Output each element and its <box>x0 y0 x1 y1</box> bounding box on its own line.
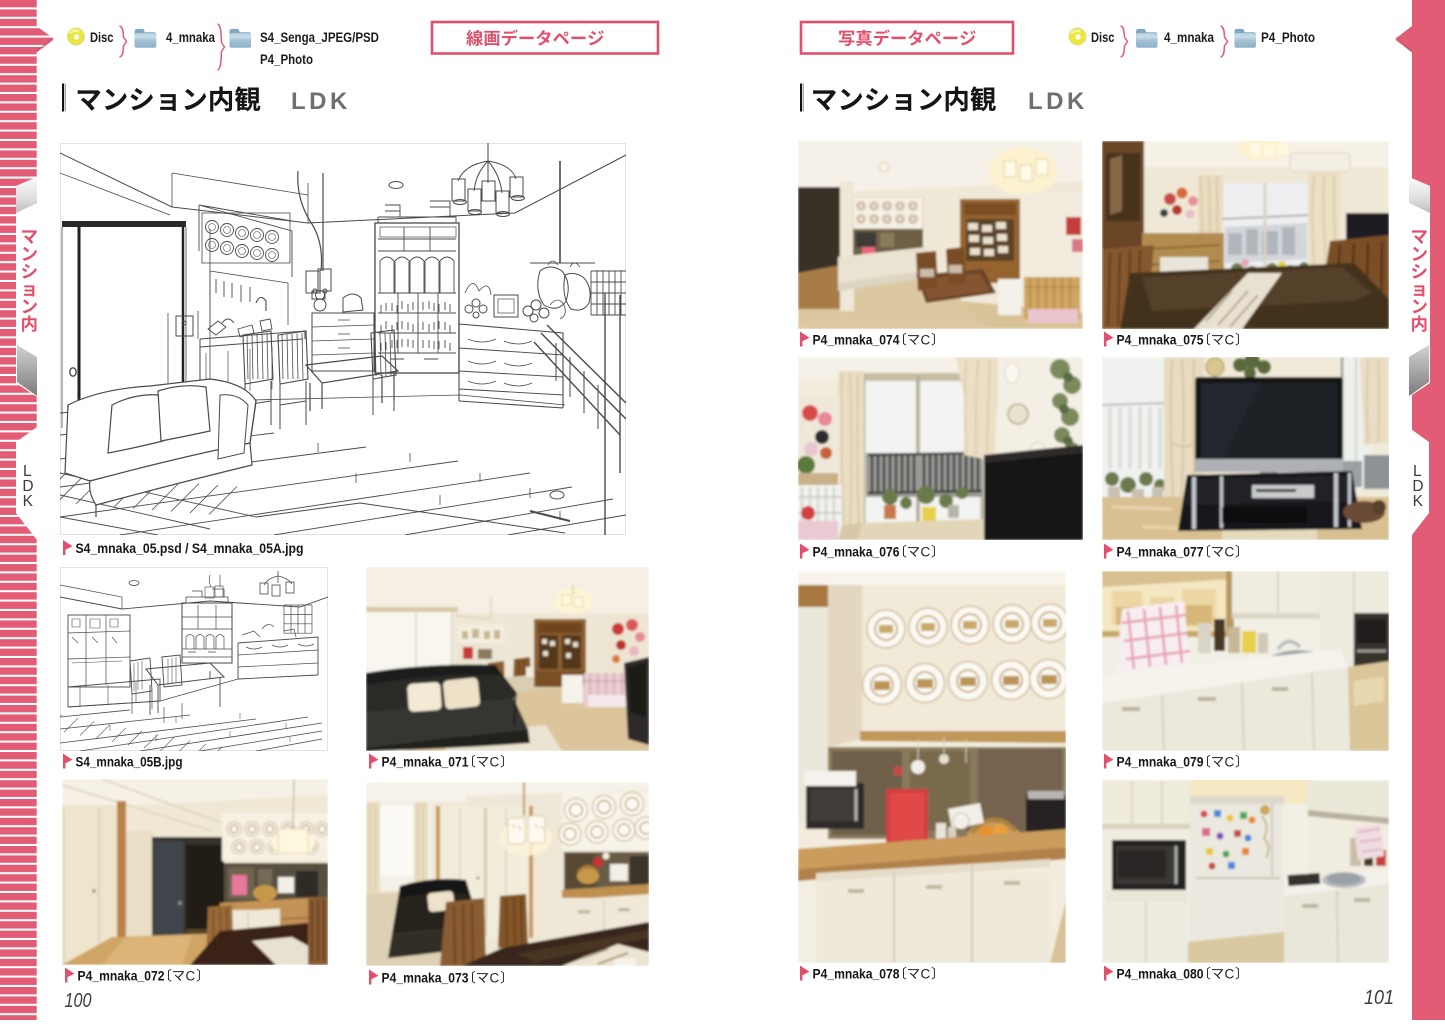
svg-text:C: C <box>490 754 500 769</box>
svg-text:C: C <box>921 332 931 347</box>
svg-text:P4_mnaka_079: P4_mnaka_079 <box>1117 753 1204 769</box>
svg-text:S4_mnaka_05B.jpg: S4_mnaka_05B.jpg <box>76 753 183 769</box>
svg-text:P4_mnaka_071: P4_mnaka_071 <box>382 753 469 769</box>
svg-text:C: C <box>1225 754 1235 769</box>
svg-text:P4_Photo: P4_Photo <box>260 52 313 67</box>
svg-text:Disc: Disc <box>1091 30 1115 45</box>
svg-text:101: 101 <box>1364 987 1394 1009</box>
svg-text:4_mnaka: 4_mnaka <box>1164 30 1214 45</box>
svg-text:P4_mnaka_073: P4_mnaka_073 <box>382 969 469 985</box>
svg-text:K: K <box>23 493 34 510</box>
svg-text:K: K <box>1413 493 1424 510</box>
svg-text:LDK: LDK <box>1028 88 1088 115</box>
svg-text:P4_mnaka_075: P4_mnaka_075 <box>1117 331 1204 347</box>
svg-text:C: C <box>1225 966 1235 981</box>
svg-text:C: C <box>186 968 196 983</box>
svg-text:C: C <box>921 544 931 559</box>
svg-text:C: C <box>1225 544 1235 559</box>
svg-text:P4_mnaka_074: P4_mnaka_074 <box>813 331 900 347</box>
svg-text:4_mnaka: 4_mnaka <box>166 30 215 45</box>
svg-text:P4_mnaka_072: P4_mnaka_072 <box>78 967 165 983</box>
svg-text:C: C <box>921 966 931 981</box>
svg-text:P4_Photo: P4_Photo <box>1261 30 1315 45</box>
svg-text:C: C <box>490 970 500 985</box>
svg-text:S4_mnaka_05.psd / S4_mnaka_05A: S4_mnaka_05.psd / S4_mnaka_05A.jpg <box>76 540 304 556</box>
svg-text:P4_mnaka_080: P4_mnaka_080 <box>1117 965 1204 981</box>
svg-text:P4_mnaka_077: P4_mnaka_077 <box>1117 543 1204 559</box>
svg-text:P4_mnaka_076: P4_mnaka_076 <box>813 543 900 559</box>
svg-text:Disc: Disc <box>90 30 114 45</box>
svg-text:P4_mnaka_078: P4_mnaka_078 <box>813 965 900 981</box>
svg-text:LDK: LDK <box>291 88 351 115</box>
svg-text:S4_Senga_JPEG/PSD: S4_Senga_JPEG/PSD <box>260 30 379 45</box>
svg-text:C: C <box>1225 332 1235 347</box>
svg-text:100: 100 <box>65 990 92 1012</box>
